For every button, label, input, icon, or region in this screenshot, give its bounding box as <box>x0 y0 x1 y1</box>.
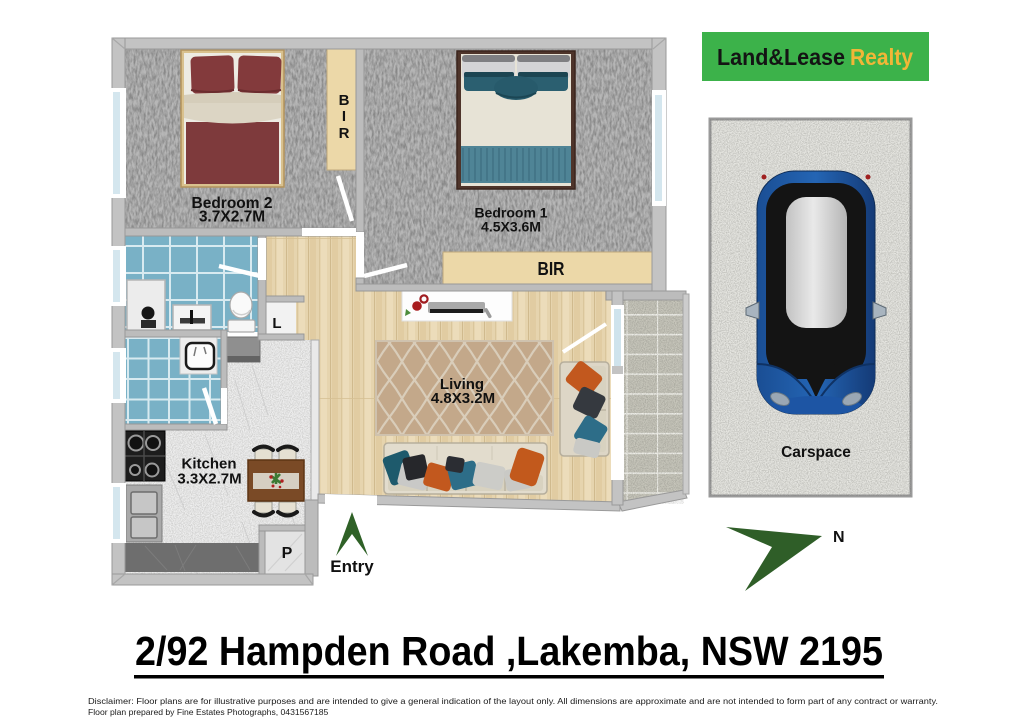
svg-text:2/92 Hampden Road ,Lakemba, NS: 2/92 Hampden Road ,Lakemba, NSW 2195 <box>135 628 883 674</box>
svg-text:N: N <box>833 529 845 546</box>
svg-text:L: L <box>272 315 281 332</box>
svg-text:R: R <box>339 125 350 142</box>
svg-text:4.5X3.6M: 4.5X3.6M <box>481 219 541 235</box>
svg-text:4.8X3.2M: 4.8X3.2M <box>431 390 495 407</box>
svg-text:Floor plan prepared by Fine Es: Floor plan prepared by Fine Estates Phot… <box>88 707 329 717</box>
svg-text:Land&Lease: Land&Lease <box>717 44 845 70</box>
svg-text:BIR: BIR <box>538 259 565 279</box>
svg-text:I: I <box>342 108 346 125</box>
svg-text:Carspace: Carspace <box>781 444 851 461</box>
svg-text:Disclaimer: Floor plans are fo: Disclaimer: Floor plans are for illustra… <box>88 696 938 706</box>
svg-text:B: B <box>339 92 350 109</box>
svg-text:Entry: Entry <box>330 557 374 576</box>
svg-text:3.3X2.7M: 3.3X2.7M <box>177 471 241 488</box>
svg-text:3.7X2.7M: 3.7X2.7M <box>199 209 265 226</box>
svg-text:Realty: Realty <box>850 44 913 70</box>
svg-text:P: P <box>282 545 293 562</box>
